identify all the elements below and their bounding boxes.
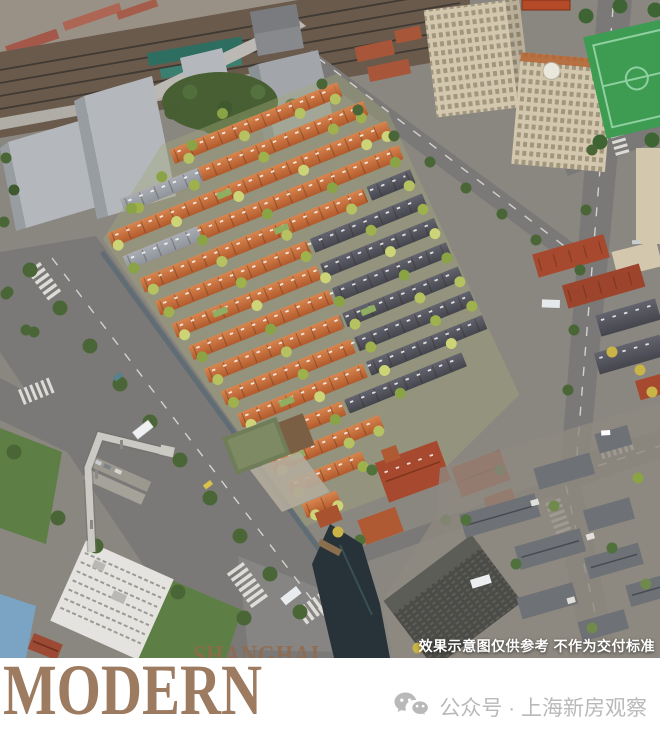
red-rooftop — [522, 0, 570, 10]
article-image: SHANGHAI 效果示意图仅供参考 不作为交付标准 MODERN 公众号 · … — [0, 0, 660, 735]
aerial-scene — [0, 0, 660, 658]
wechat-account: 公众号 · 上海新房观察 — [393, 691, 647, 722]
wechat-icon — [393, 691, 430, 722]
aerial-rendering: SHANGHAI 效果示意图仅供参考 不作为交付标准 — [0, 0, 660, 658]
wechat-account-label: 公众号 · 上海新房观察 — [439, 692, 647, 722]
disclaimer-text: 效果示意图仅供参考 不作为交付标准 — [419, 636, 655, 656]
brand-title: MODERN — [3, 654, 262, 726]
footer-bar: MODERN 公众号 · 上海新房观察 — [0, 658, 660, 735]
